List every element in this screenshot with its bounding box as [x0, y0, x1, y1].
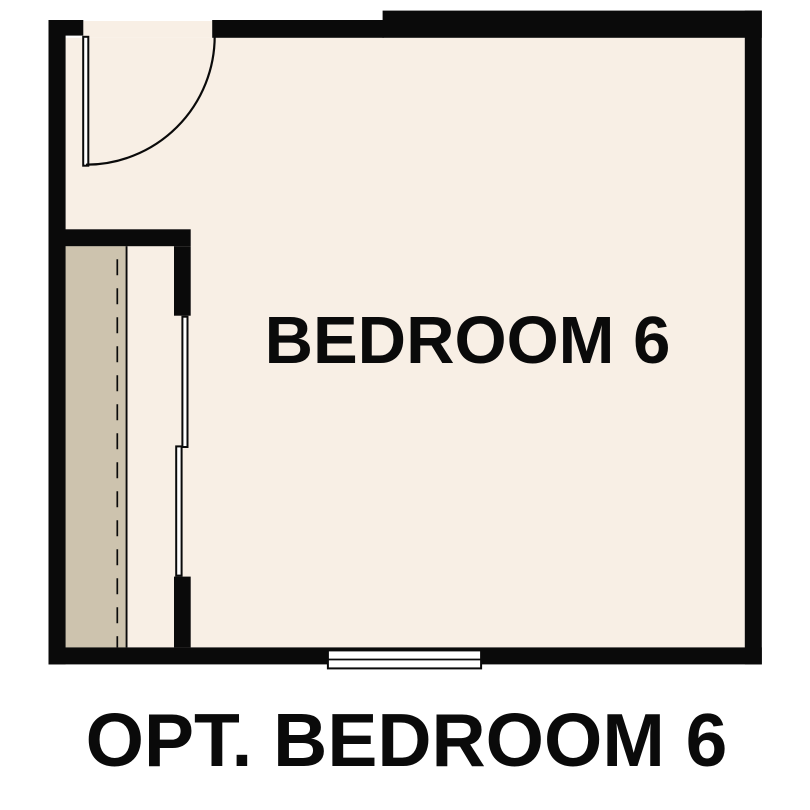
svg-text:BEDROOM 6: BEDROOM 6 — [265, 303, 671, 378]
svg-text:OPT. BEDROOM 6: OPT. BEDROOM 6 — [86, 698, 728, 782]
